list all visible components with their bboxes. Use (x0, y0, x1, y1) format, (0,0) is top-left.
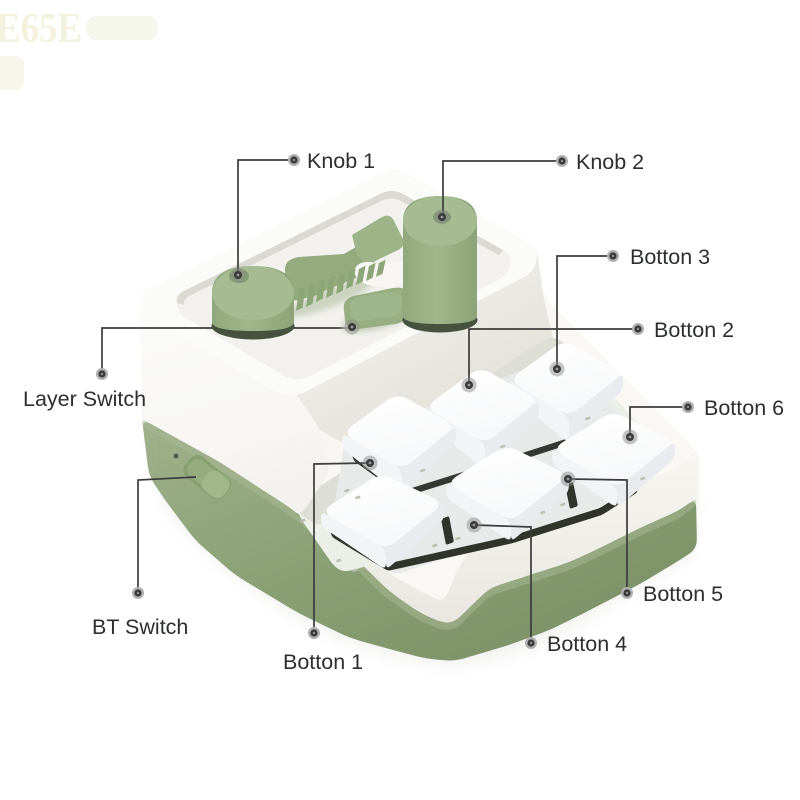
svg-text:E65E: E65E (0, 6, 82, 52)
svg-text:Botton 4: Botton 4 (547, 632, 627, 656)
svg-text:Botton 1: Botton 1 (283, 650, 363, 674)
svg-text:Layer Switch: Layer Switch (23, 387, 146, 411)
svg-text:Botton 3: Botton 3 (630, 245, 710, 269)
svg-text:BT Switch: BT Switch (92, 615, 188, 639)
svg-text:Botton 2: Botton 2 (654, 318, 734, 342)
svg-text:Botton 5: Botton 5 (643, 582, 723, 606)
svg-text:Knob 1: Knob 1 (307, 149, 375, 173)
svg-text:Botton 6: Botton 6 (704, 396, 784, 420)
svg-text:Knob 2: Knob 2 (576, 150, 644, 174)
